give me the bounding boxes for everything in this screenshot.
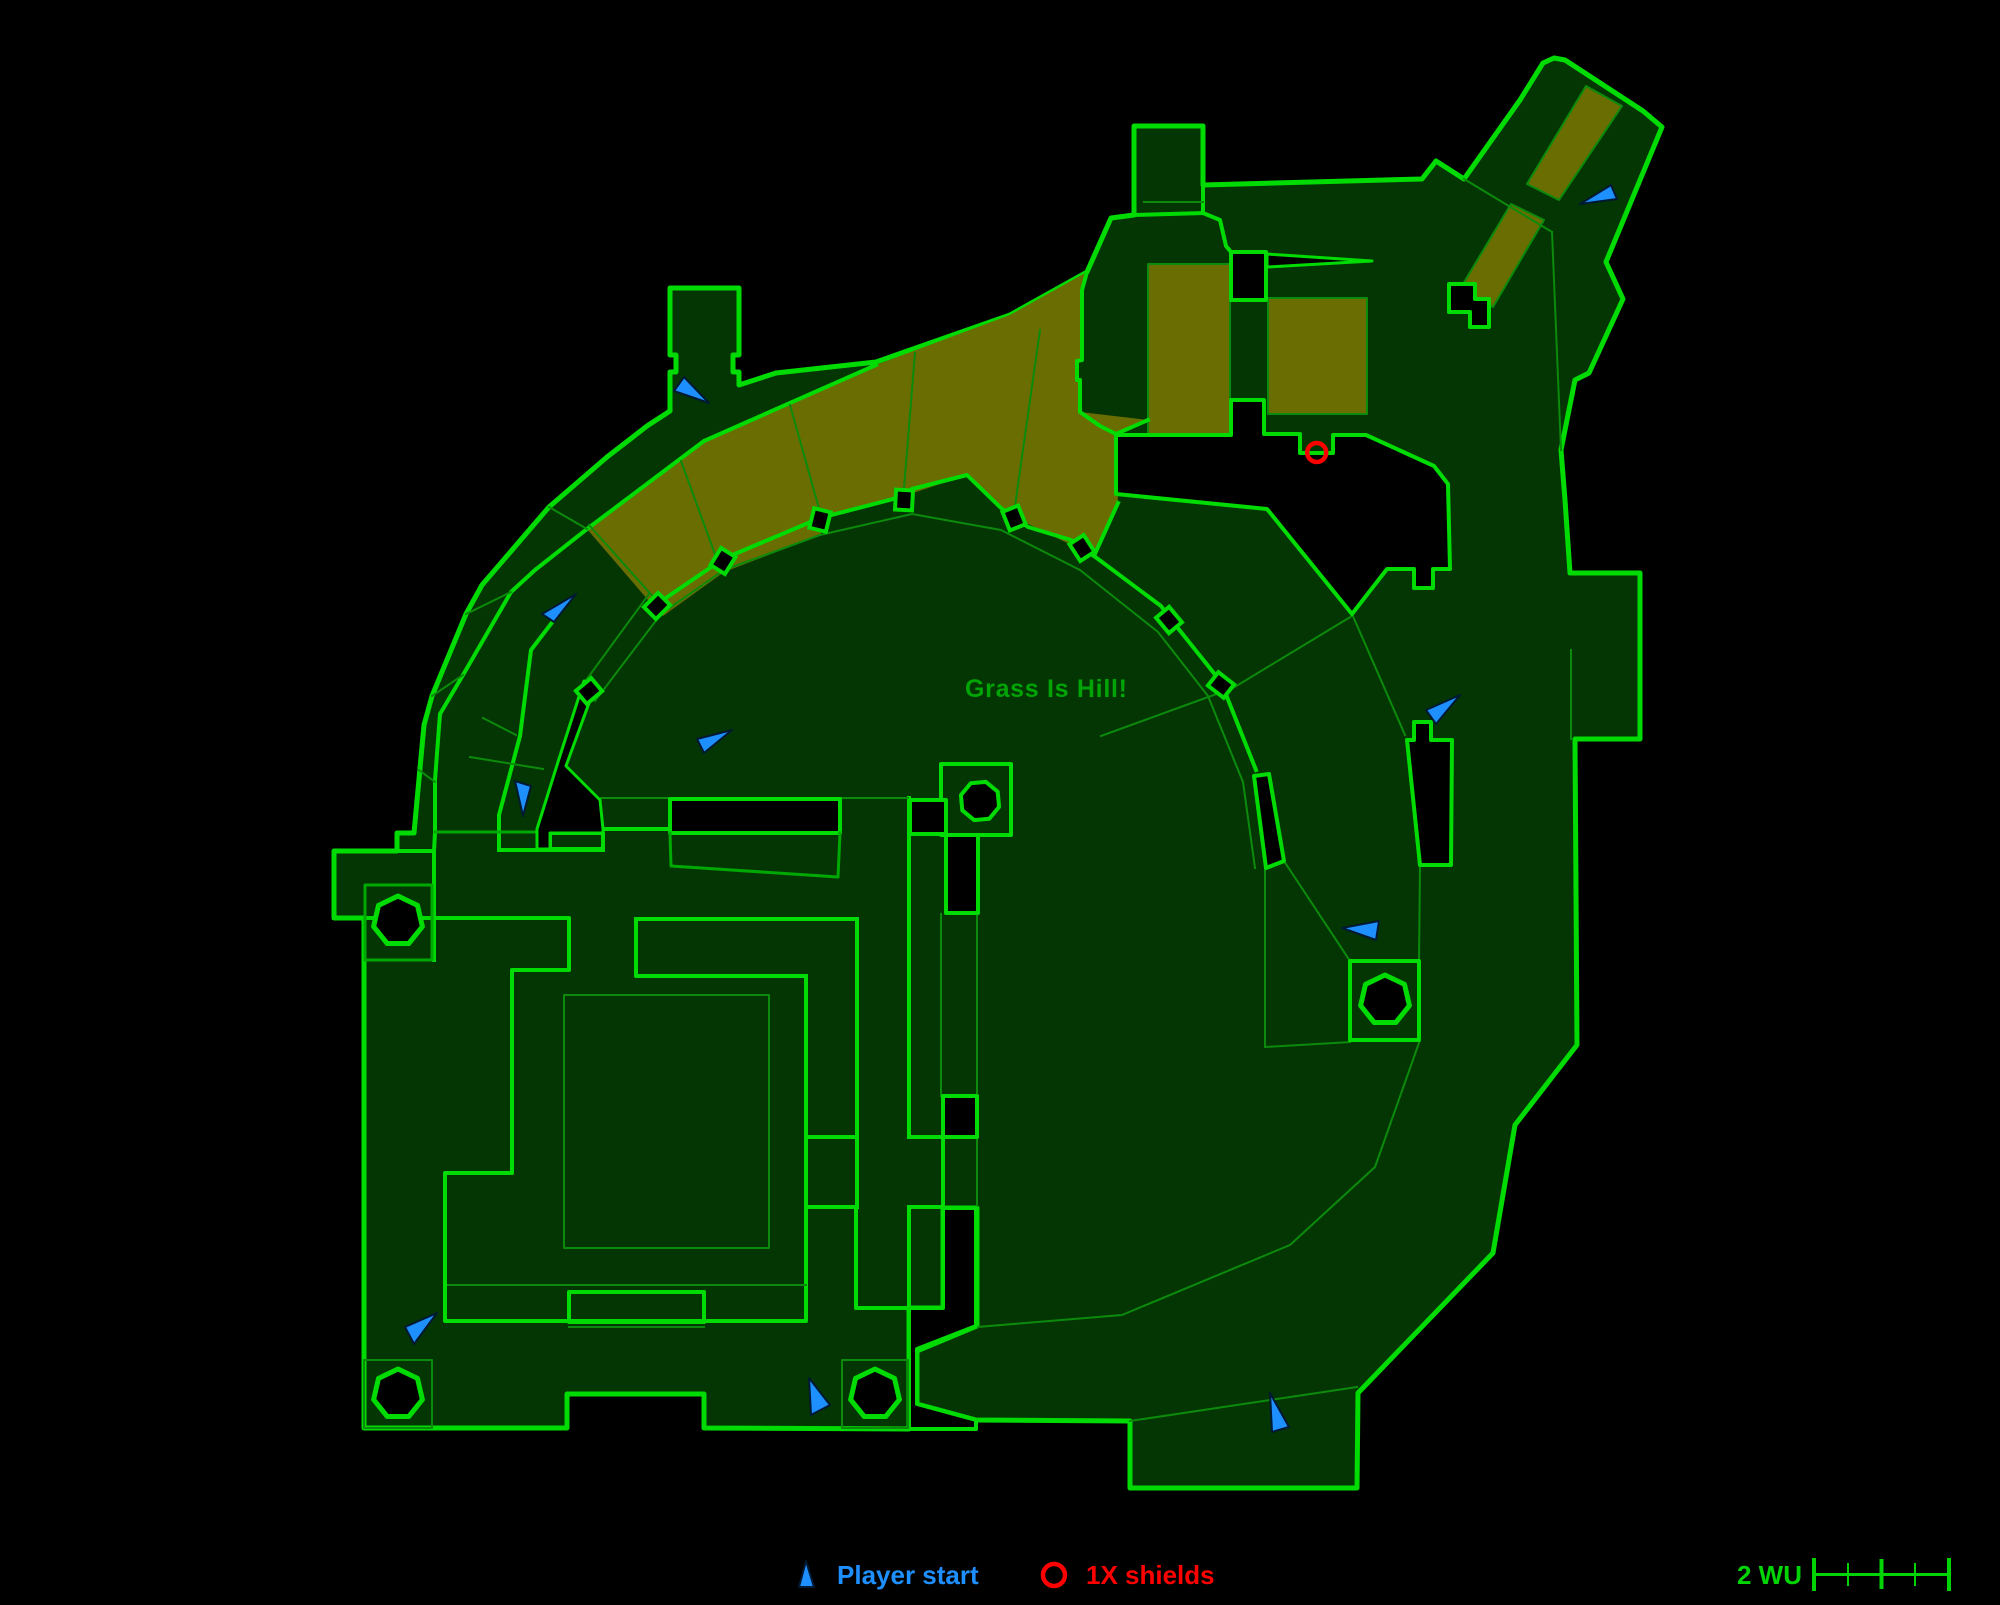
svg-text:Grass Is Hill!: Grass Is Hill! (965, 675, 1128, 703)
svg-text:1X shields: 1X shields (1086, 1560, 1215, 1590)
svg-text:2 WU: 2 WU (1737, 1560, 1802, 1590)
svg-text:Player start: Player start (837, 1560, 979, 1590)
